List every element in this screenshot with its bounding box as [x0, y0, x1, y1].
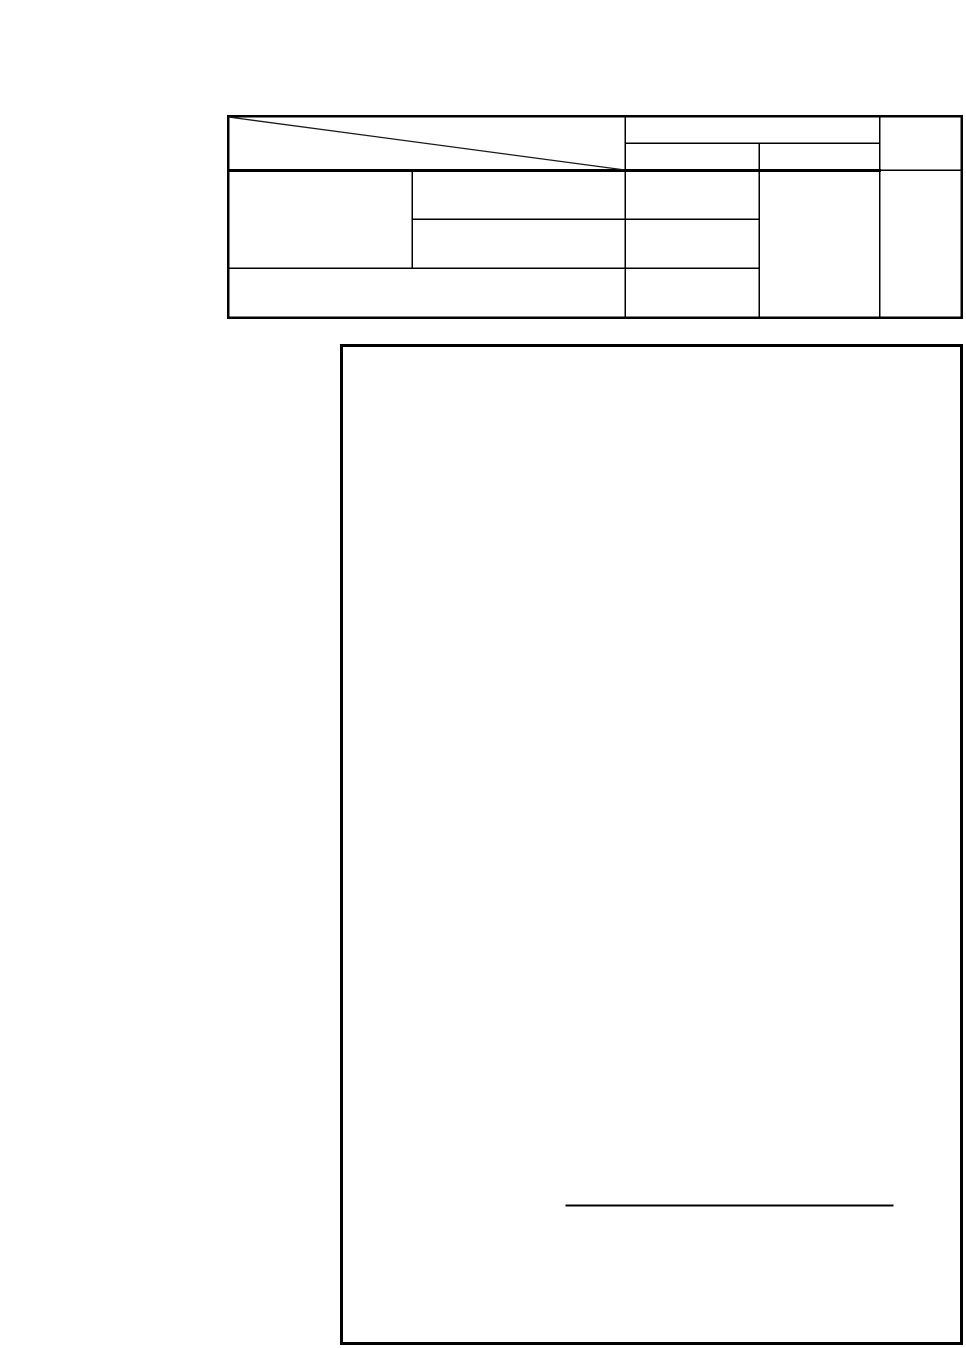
empty-table	[227, 115, 963, 319]
figure-box	[342, 346, 962, 1344]
page-graphics	[0, 0, 966, 1348]
table-diagonal-header-slash	[229, 117, 626, 170]
figure-box-border	[342, 346, 962, 1344]
scanned-document-page	[0, 0, 966, 1348]
